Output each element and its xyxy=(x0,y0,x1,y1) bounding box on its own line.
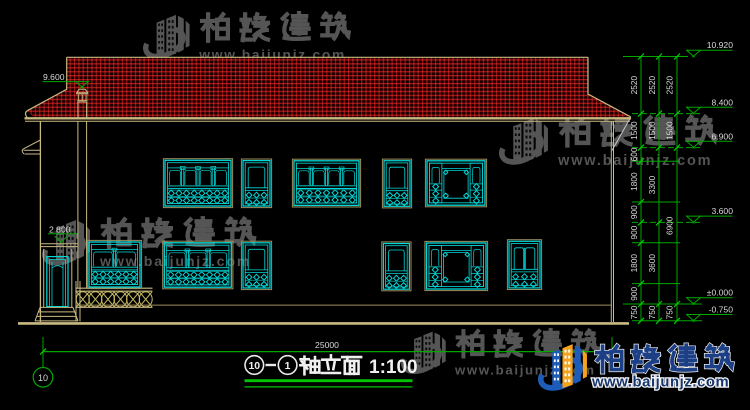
svg-text:10: 10 xyxy=(248,360,260,372)
svg-text:900: 900 xyxy=(629,225,639,239)
svg-text:750: 750 xyxy=(665,305,675,319)
svg-text:1: 1 xyxy=(285,360,291,372)
svg-text:2.800: 2.800 xyxy=(49,224,71,234)
svg-text:1500: 1500 xyxy=(647,121,657,140)
svg-text:8.400: 8.400 xyxy=(711,97,733,107)
svg-text:-0.750: -0.750 xyxy=(709,305,734,315)
svg-text:1:100: 1:100 xyxy=(369,357,418,378)
svg-text:750: 750 xyxy=(629,305,639,319)
svg-text:9.600: 9.600 xyxy=(43,72,65,82)
svg-text:1800: 1800 xyxy=(629,172,639,191)
svg-text:6.900: 6.900 xyxy=(711,131,733,141)
svg-text:6900: 6900 xyxy=(665,216,675,235)
svg-text:1500: 1500 xyxy=(665,121,675,140)
svg-text:±0.000: ±0.000 xyxy=(707,288,733,298)
svg-text:2520: 2520 xyxy=(665,75,675,94)
svg-text:10: 10 xyxy=(38,373,48,383)
svg-text:3300: 3300 xyxy=(647,175,657,194)
svg-text:10.920: 10.920 xyxy=(707,40,734,50)
svg-text:1800: 1800 xyxy=(629,254,639,273)
svg-text:900: 900 xyxy=(629,286,639,300)
svg-text:750: 750 xyxy=(647,305,657,319)
svg-text:2520: 2520 xyxy=(629,75,639,94)
svg-text:900: 900 xyxy=(629,205,639,219)
svg-text:www.baijunjz.com: www.baijunjz.com xyxy=(591,375,729,391)
svg-text:3600: 3600 xyxy=(647,254,657,273)
svg-text:1500: 1500 xyxy=(629,121,639,140)
svg-text:25000: 25000 xyxy=(315,340,339,350)
svg-text:3.600: 3.600 xyxy=(711,206,733,216)
svg-text:2520: 2520 xyxy=(647,75,657,94)
svg-text:600: 600 xyxy=(629,147,639,161)
